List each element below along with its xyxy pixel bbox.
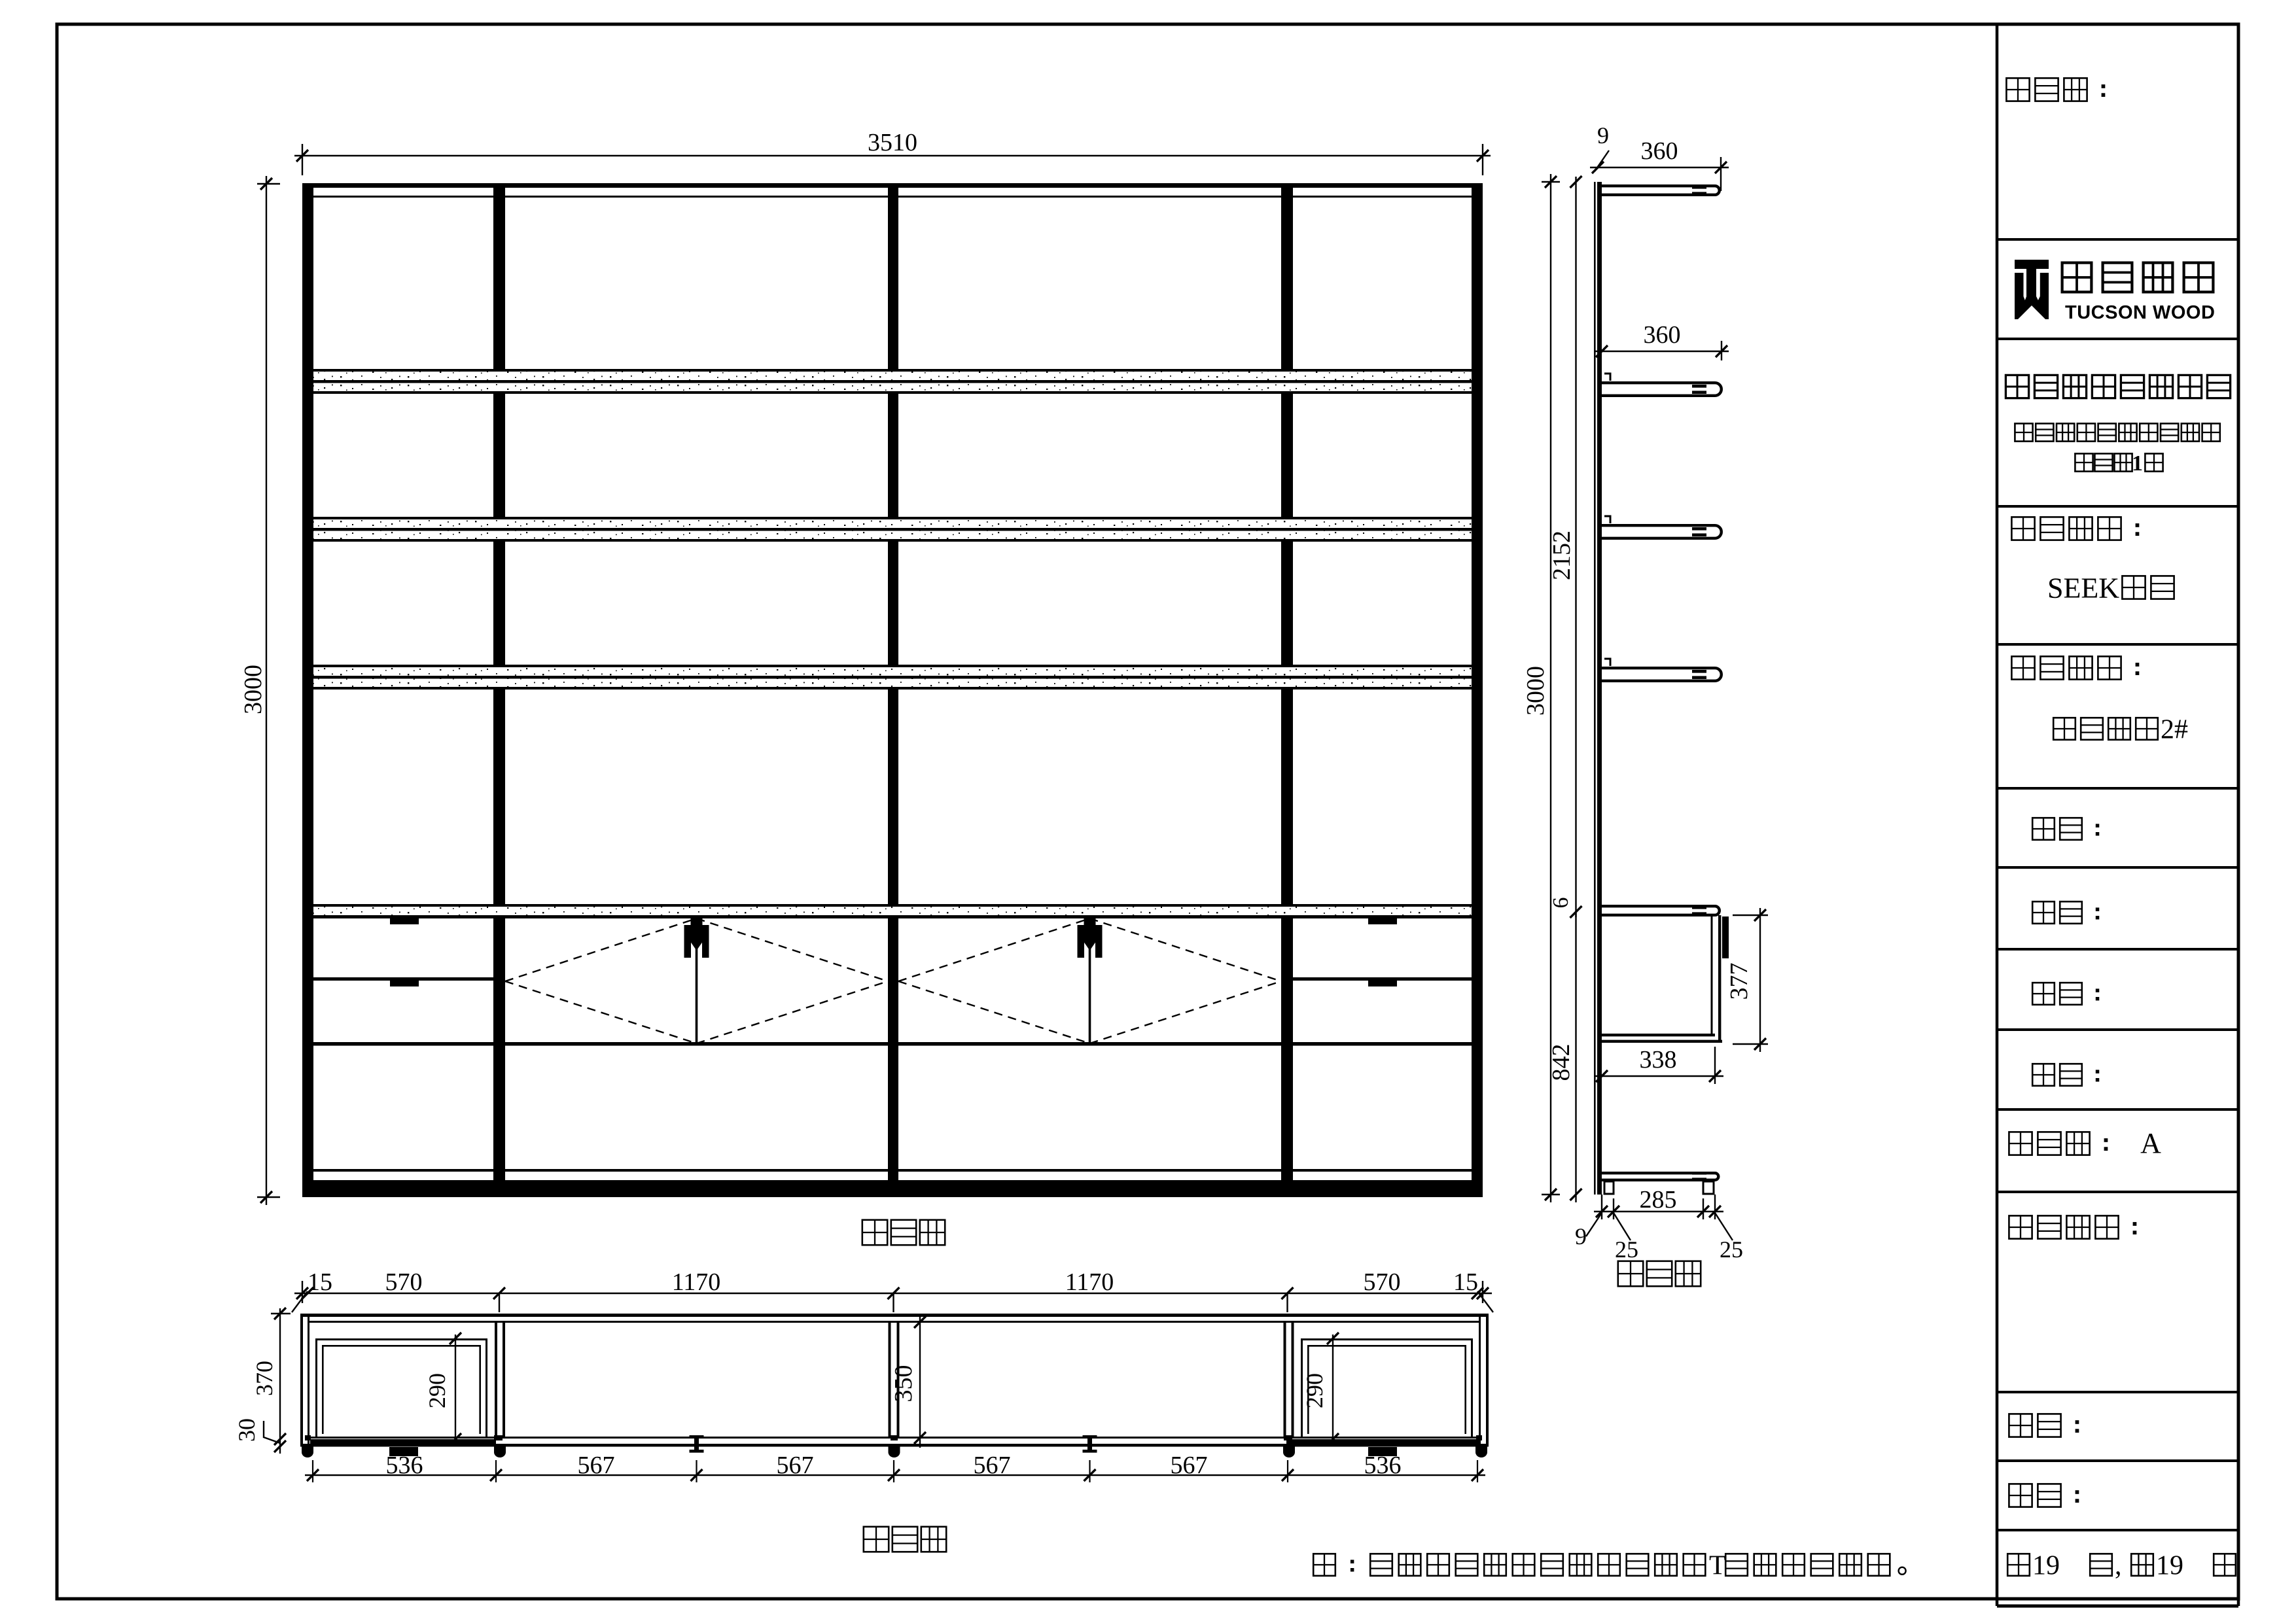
svg-text:A: A: [2140, 1127, 2161, 1159]
svg-text:19: 19: [2156, 1551, 2183, 1581]
svg-text:T: T: [1709, 1551, 1726, 1581]
svg-text:25: 25: [1615, 1236, 1638, 1263]
svg-text:25: 25: [1720, 1236, 1743, 1263]
svg-text:370: 370: [251, 1361, 277, 1396]
svg-text:3510: 3510: [868, 129, 917, 156]
svg-text:3000: 3000: [1522, 666, 1549, 716]
svg-text:842: 842: [1547, 1044, 1575, 1081]
svg-text:TUCSON WOOD: TUCSON WOOD: [2065, 302, 2215, 323]
svg-text:2#: 2#: [2161, 715, 2188, 745]
svg-text:SEEK: SEEK: [2047, 572, 2119, 604]
svg-text:1170: 1170: [1065, 1268, 1114, 1296]
svg-text:6: 6: [1549, 898, 1573, 909]
svg-text:3000: 3000: [239, 665, 267, 714]
svg-text:350: 350: [890, 1365, 917, 1403]
svg-text:290: 290: [1301, 1373, 1328, 1408]
svg-text:570: 570: [1364, 1268, 1401, 1296]
svg-text:290: 290: [424, 1373, 450, 1408]
svg-text:2152: 2152: [1548, 531, 1576, 580]
svg-text:536: 536: [386, 1452, 423, 1479]
svg-text:9: 9: [1597, 122, 1609, 148]
svg-text:567: 567: [578, 1452, 615, 1479]
svg-text:1: 1: [2132, 451, 2143, 476]
svg-text:1170: 1170: [672, 1268, 721, 1296]
svg-text:338: 338: [1640, 1046, 1677, 1073]
svg-text:360: 360: [1644, 321, 1681, 349]
svg-text:9: 9: [1575, 1223, 1587, 1249]
svg-text:570: 570: [385, 1268, 423, 1296]
svg-text:15: 15: [308, 1268, 332, 1296]
svg-text:19: 19: [2032, 1551, 2060, 1581]
svg-text:360: 360: [1641, 137, 1678, 165]
svg-text:377: 377: [1725, 963, 1753, 1000]
svg-text:567: 567: [974, 1452, 1011, 1479]
svg-text:285: 285: [1640, 1186, 1677, 1213]
svg-text:567: 567: [1171, 1452, 1208, 1479]
svg-text:,: ,: [2115, 1551, 2122, 1581]
svg-text:15: 15: [1453, 1268, 1478, 1296]
svg-text:30: 30: [234, 1418, 260, 1442]
svg-text:567: 567: [777, 1452, 814, 1479]
svg-text:536: 536: [1364, 1452, 1402, 1479]
